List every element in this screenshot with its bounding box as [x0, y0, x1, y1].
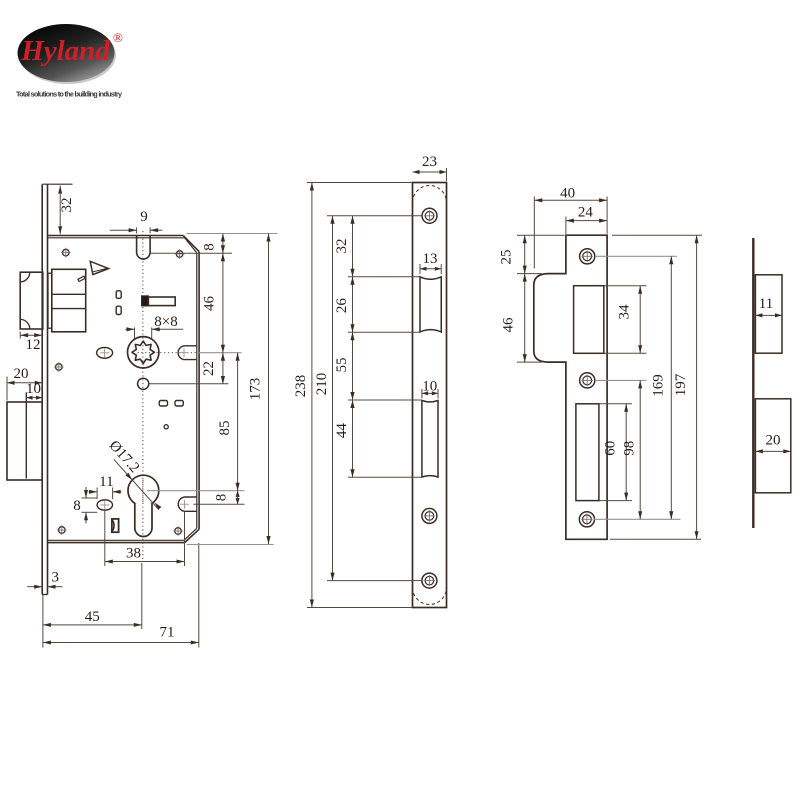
svg-text:Total solutions to the buildin: Total solutions to the building industry — [16, 90, 123, 99]
svg-text:8: 8 — [214, 494, 230, 502]
svg-text:173: 173 — [248, 378, 264, 401]
svg-text:44: 44 — [334, 423, 350, 439]
svg-text:24: 24 — [578, 205, 594, 221]
svg-text:11: 11 — [759, 296, 773, 312]
svg-text:85: 85 — [217, 421, 233, 436]
svg-text:10: 10 — [422, 379, 437, 395]
svg-text:169: 169 — [650, 374, 666, 397]
svg-text:32: 32 — [59, 198, 75, 213]
svg-text:71: 71 — [160, 625, 175, 641]
svg-text:®: ® — [113, 30, 123, 45]
svg-text:22: 22 — [201, 361, 217, 376]
svg-text:98: 98 — [621, 441, 637, 456]
svg-text:26: 26 — [334, 298, 350, 314]
svg-text:46: 46 — [202, 296, 218, 312]
svg-text:23: 23 — [422, 154, 437, 170]
svg-text:40: 40 — [560, 186, 575, 202]
svg-text:46: 46 — [500, 317, 516, 333]
svg-text:55: 55 — [334, 358, 350, 373]
svg-text:25: 25 — [499, 250, 515, 265]
svg-text:34: 34 — [617, 304, 633, 320]
svg-text:12: 12 — [26, 337, 41, 353]
svg-text:32: 32 — [334, 239, 350, 254]
svg-text:38: 38 — [126, 546, 141, 562]
svg-text:Hyland: Hyland — [20, 35, 110, 67]
svg-text:20: 20 — [14, 366, 29, 382]
svg-text:10: 10 — [26, 381, 41, 397]
svg-text:8×8: 8×8 — [154, 314, 177, 330]
svg-text:11: 11 — [99, 474, 113, 490]
svg-text:210: 210 — [314, 373, 330, 396]
svg-text:8: 8 — [202, 243, 218, 251]
svg-text:8: 8 — [73, 498, 81, 514]
svg-text:13: 13 — [423, 251, 438, 267]
svg-text:45: 45 — [85, 609, 100, 625]
svg-text:197: 197 — [673, 373, 689, 396]
svg-text:60: 60 — [603, 441, 619, 456]
svg-text:3: 3 — [52, 570, 60, 586]
svg-text:20: 20 — [766, 433, 781, 449]
svg-text:9: 9 — [140, 209, 148, 225]
svg-text:238: 238 — [293, 375, 309, 398]
